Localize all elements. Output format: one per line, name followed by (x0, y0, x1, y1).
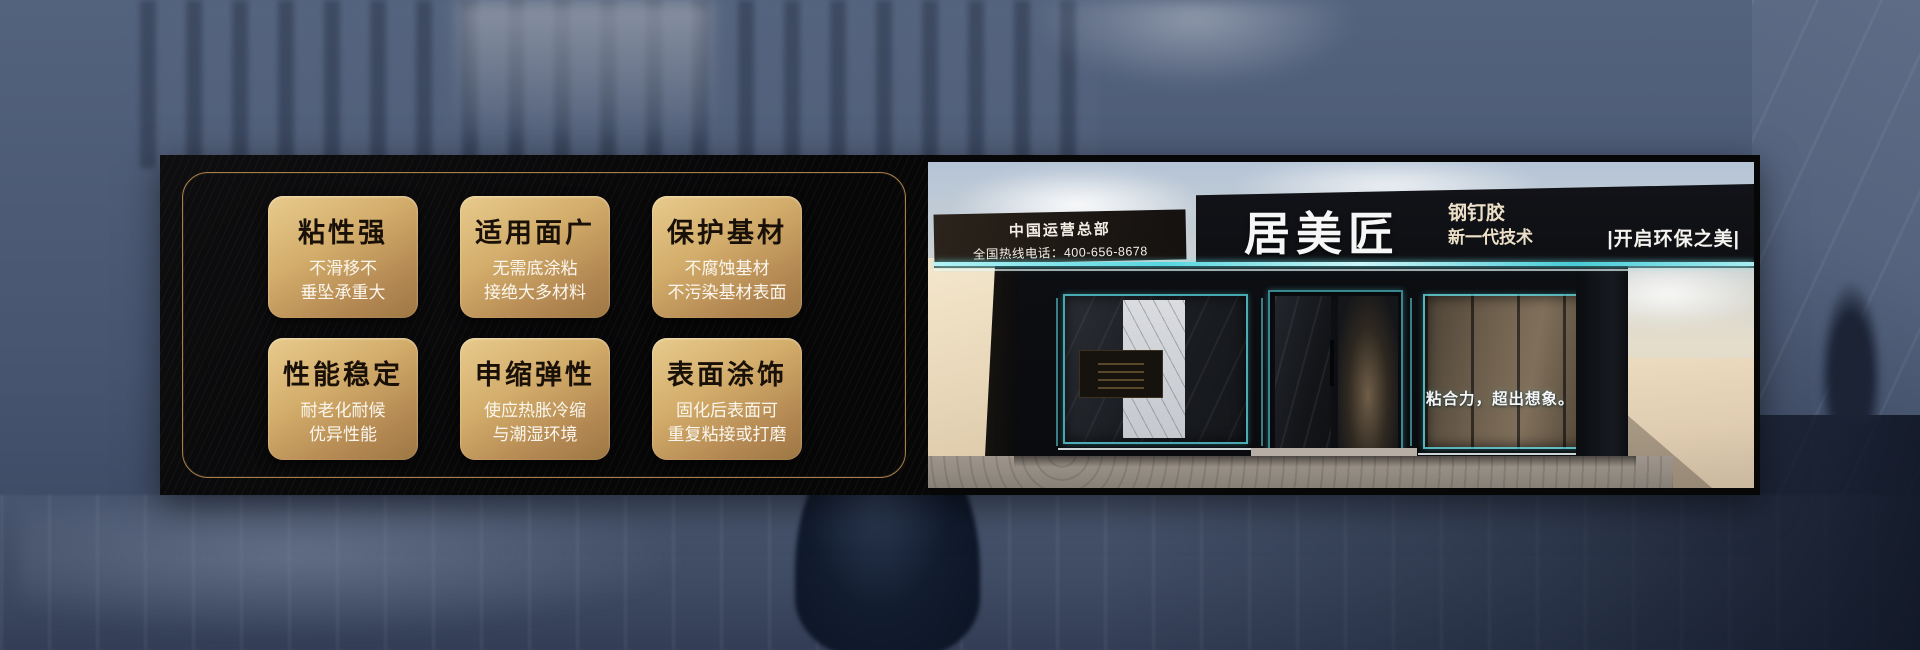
building-right-wall (1576, 266, 1628, 458)
card-line-2: 垂坠承重大 (268, 281, 418, 305)
promo-banner: 粘性强 不滑移不 垂坠承重大 适用面广 无需底涂粘 接绝大多材料 保护基材 不腐… (160, 155, 1760, 495)
feature-card-protect-substrate: 保护基材 不腐蚀基材 不污染基材表面 (652, 196, 802, 318)
card-line-1: 不滑移不 (268, 257, 418, 281)
product-tagline: 钢钉胶 新一代技术 (1448, 201, 1533, 250)
card-line-1: 使应热胀冷缩 (460, 399, 610, 423)
card-line-2: 重复粘接或打磨 (652, 423, 802, 447)
hq-sign: 中国运营总部 全国热线电话：400-656-8678 (934, 209, 1187, 264)
eco-slogan: |开启环保之美| (1607, 224, 1740, 251)
background-plant-blur (1820, 282, 1882, 422)
storefront-shadow (1014, 456, 1636, 467)
card-title: 适用面广 (460, 211, 610, 250)
card-title: 表面涂饰 (652, 353, 802, 392)
card-line-2: 不污染基材表面 (652, 281, 802, 305)
storefront-body (1018, 266, 1628, 458)
card-line-1: 耐老化耐候 (268, 399, 418, 423)
door-pane-left (1275, 296, 1331, 456)
display-window-left (1063, 294, 1248, 444)
card-line-2: 接绝大多材料 (460, 281, 610, 305)
led-strip (934, 262, 1754, 266)
window-sill-line (1058, 448, 1254, 450)
canopy-edge-line (934, 269, 1628, 271)
feature-card-adhesion: 粘性强 不滑移不 垂坠承重大 (268, 196, 418, 318)
feature-card-wide-use: 适用面广 无需底涂粘 接绝大多材料 (460, 196, 610, 318)
led-pillar-accent (1410, 298, 1412, 446)
card-title: 性能稳定 (268, 353, 418, 392)
card-title: 申缩弹性 (460, 353, 610, 392)
promo-banner-page: 粘性强 不滑移不 垂坠承重大 适用面广 无需底涂粘 接绝大多材料 保护基材 不腐… (0, 0, 1920, 650)
background-lower-room (0, 495, 1920, 650)
background-right-wall (1752, 0, 1920, 650)
brand-name: 居美匠 (1244, 198, 1400, 264)
feature-card-elastic: 申缩弹性 使应热胀冷缩 与潮湿环境 (460, 338, 610, 460)
led-pillar-accent (1261, 298, 1263, 446)
hotline-label: 全国热线电话：400-656-8678 (934, 239, 1186, 263)
generation-text: 新一代技术 (1448, 227, 1533, 250)
feature-card-stable: 性能稳定 耐老化耐候 优异性能 (268, 338, 418, 460)
card-title: 粘性强 (268, 211, 418, 250)
feature-cards-grid: 粘性强 不滑移不 垂坠承重大 适用面广 无需底涂粘 接绝大多材料 保护基材 不腐… (268, 196, 802, 460)
entrance-door (1268, 290, 1403, 460)
background-light-blur (1030, 0, 1360, 90)
window-slogan: 粘合力，超出想象。 (1426, 387, 1575, 409)
card-line-1: 固化后表面可 (652, 399, 802, 423)
brand-sign: 居美匠 钢钉胶 新一代技术 |开启环保之美| (1196, 184, 1754, 264)
features-panel: 粘性强 不滑移不 垂坠承重大 适用面广 无需底涂粘 接绝大多材料 保护基材 不腐… (160, 155, 930, 495)
background-picture-blur (460, 0, 710, 135)
card-line-1: 不腐蚀基材 (652, 257, 802, 281)
product-name: 钢钉胶 (1448, 201, 1533, 227)
card-line-2: 优异性能 (268, 423, 418, 447)
hq-label: 中国运营总部 (934, 216, 1186, 242)
card-line-2: 与潮湿环境 (460, 423, 610, 447)
feature-card-surface-finish: 表面涂饰 固化后表面可 重复粘接或打磨 (652, 338, 802, 460)
door-handle (1330, 340, 1334, 386)
background-slats (140, 0, 1100, 168)
background-table-blur (20, 505, 680, 635)
card-title: 保护基材 (652, 211, 802, 250)
led-pillar-accent (1056, 298, 1058, 446)
product-display-board (1079, 350, 1163, 398)
door-pane-right (1338, 296, 1398, 456)
card-line-1: 无需底涂粘 (460, 257, 610, 281)
storefront-photo: 中国运营总部 全国热线电话：400-656-8678 居美匠 钢钉胶 新一代技术… (928, 162, 1754, 488)
